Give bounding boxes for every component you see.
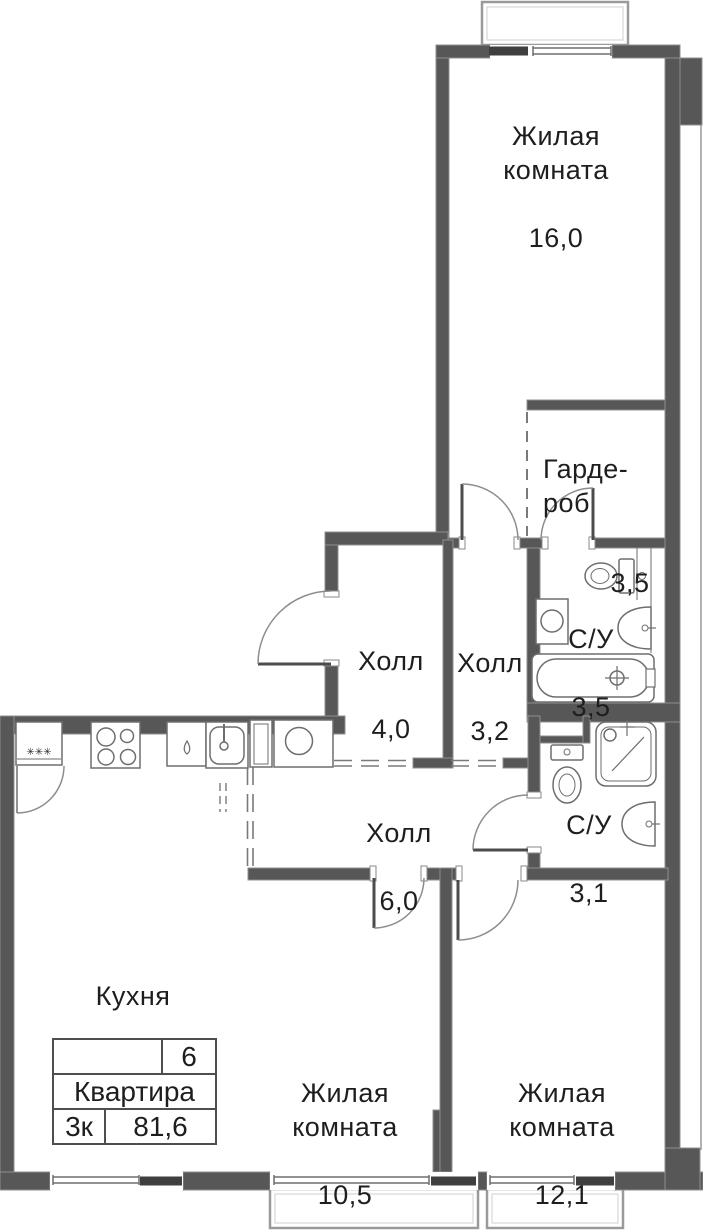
room-label-living1: Жилая комната 16,0 (445, 85, 667, 289)
room-name: Холл (450, 646, 530, 680)
dishwasher-icon (167, 722, 206, 766)
blank-cell (54, 1040, 163, 1073)
window-top (489, 45, 612, 58)
room-name: Холл (332, 816, 466, 850)
room-name: Кухня (40, 979, 226, 1013)
living3-door (458, 880, 518, 940)
room-label-living3: Жилая комната 12,1 (462, 1042, 662, 1232)
table-row: 6 (54, 1040, 215, 1075)
apartment-info-table: 6 Квартира 3к 81,6 (52, 1038, 217, 1145)
rooms-count: 3к (54, 1110, 106, 1143)
balcony-top (482, 2, 628, 45)
room-label-hall3: Холл 6,0 (332, 782, 466, 952)
entrance-door (258, 591, 331, 664)
room-label-hall2: Холл 3,2 (450, 612, 530, 782)
cabinet-icon (250, 720, 272, 767)
fridge-icon: ✳✳✳ (16, 722, 62, 765)
table-row: 3к 81,6 (54, 1110, 215, 1143)
room-area: 4,0 (336, 712, 446, 746)
room-name: С/У (543, 808, 635, 842)
window-kitchen (50, 1172, 183, 1190)
room-label-living2: Жилая комната 10,5 (252, 1042, 438, 1232)
room-label-bath2: С/У 3,1 (543, 774, 635, 944)
room-area: 3,5 (545, 690, 637, 724)
room-area: 6,0 (332, 884, 466, 918)
room-area: 3,2 (450, 714, 530, 748)
stove-icon (91, 722, 140, 768)
total-area: 81,6 (106, 1110, 215, 1143)
room-area: 12,1 (462, 1178, 662, 1212)
room-name: Гарде- роб (543, 452, 668, 520)
bath2-door (473, 795, 528, 850)
floor-plan: ✳✳✳ (0, 0, 703, 1232)
room-label-bath1: С/У 3,5 (545, 588, 637, 758)
room-label-hall1: Холл 4,0 (336, 610, 446, 780)
room-area: 10,5 (252, 1178, 438, 1212)
svg-text:✳✳✳: ✳✳✳ (26, 747, 51, 758)
apartment-number: 6 (163, 1040, 215, 1073)
room-name: Жилая комната (252, 1076, 438, 1144)
kitchen-sink-icon (206, 722, 248, 768)
room-area: 3,1 (543, 876, 635, 910)
apartment-label: Квартира (54, 1075, 215, 1108)
table-row: Квартира (54, 1075, 215, 1110)
fridge-door-arc (17, 766, 64, 813)
washer-icon (274, 720, 333, 767)
room-name: С/У (545, 622, 637, 656)
room-name: Холл (336, 644, 446, 678)
room-area: 16,0 (445, 221, 667, 255)
living1-door (462, 484, 518, 540)
room-name: Жилая комната (462, 1076, 662, 1144)
room-name: Жилая комната (445, 119, 667, 187)
